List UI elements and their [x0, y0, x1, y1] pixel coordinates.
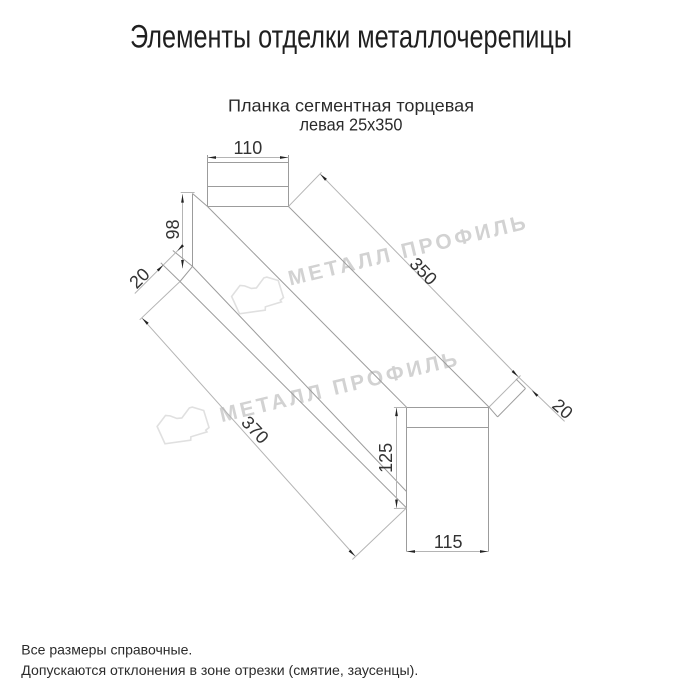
svg-text:20: 20: [548, 395, 576, 423]
svg-text:левая 25х350: левая 25х350: [300, 114, 403, 134]
svg-text:Элементы отделки металлочерепи: Элементы отделки металлочерепицы: [130, 19, 572, 55]
svg-text:110: 110: [234, 138, 263, 158]
svg-text:МЕТАЛЛ ПРОФИЛЬ: МЕТАЛЛ ПРОФИЛЬ: [286, 211, 531, 291]
svg-text:98: 98: [163, 219, 183, 239]
svg-text:Допускаются отклонения в зоне: Допускаются отклонения в зоне отрезки (с…: [21, 662, 418, 678]
svg-text:Планка сегментная торцевая: Планка сегментная торцевая: [228, 96, 474, 116]
svg-text:20: 20: [125, 264, 153, 292]
svg-text:115: 115: [434, 532, 463, 552]
svg-text:Все размеры справочные.: Все размеры справочные.: [21, 642, 192, 658]
svg-text:125: 125: [376, 443, 396, 473]
